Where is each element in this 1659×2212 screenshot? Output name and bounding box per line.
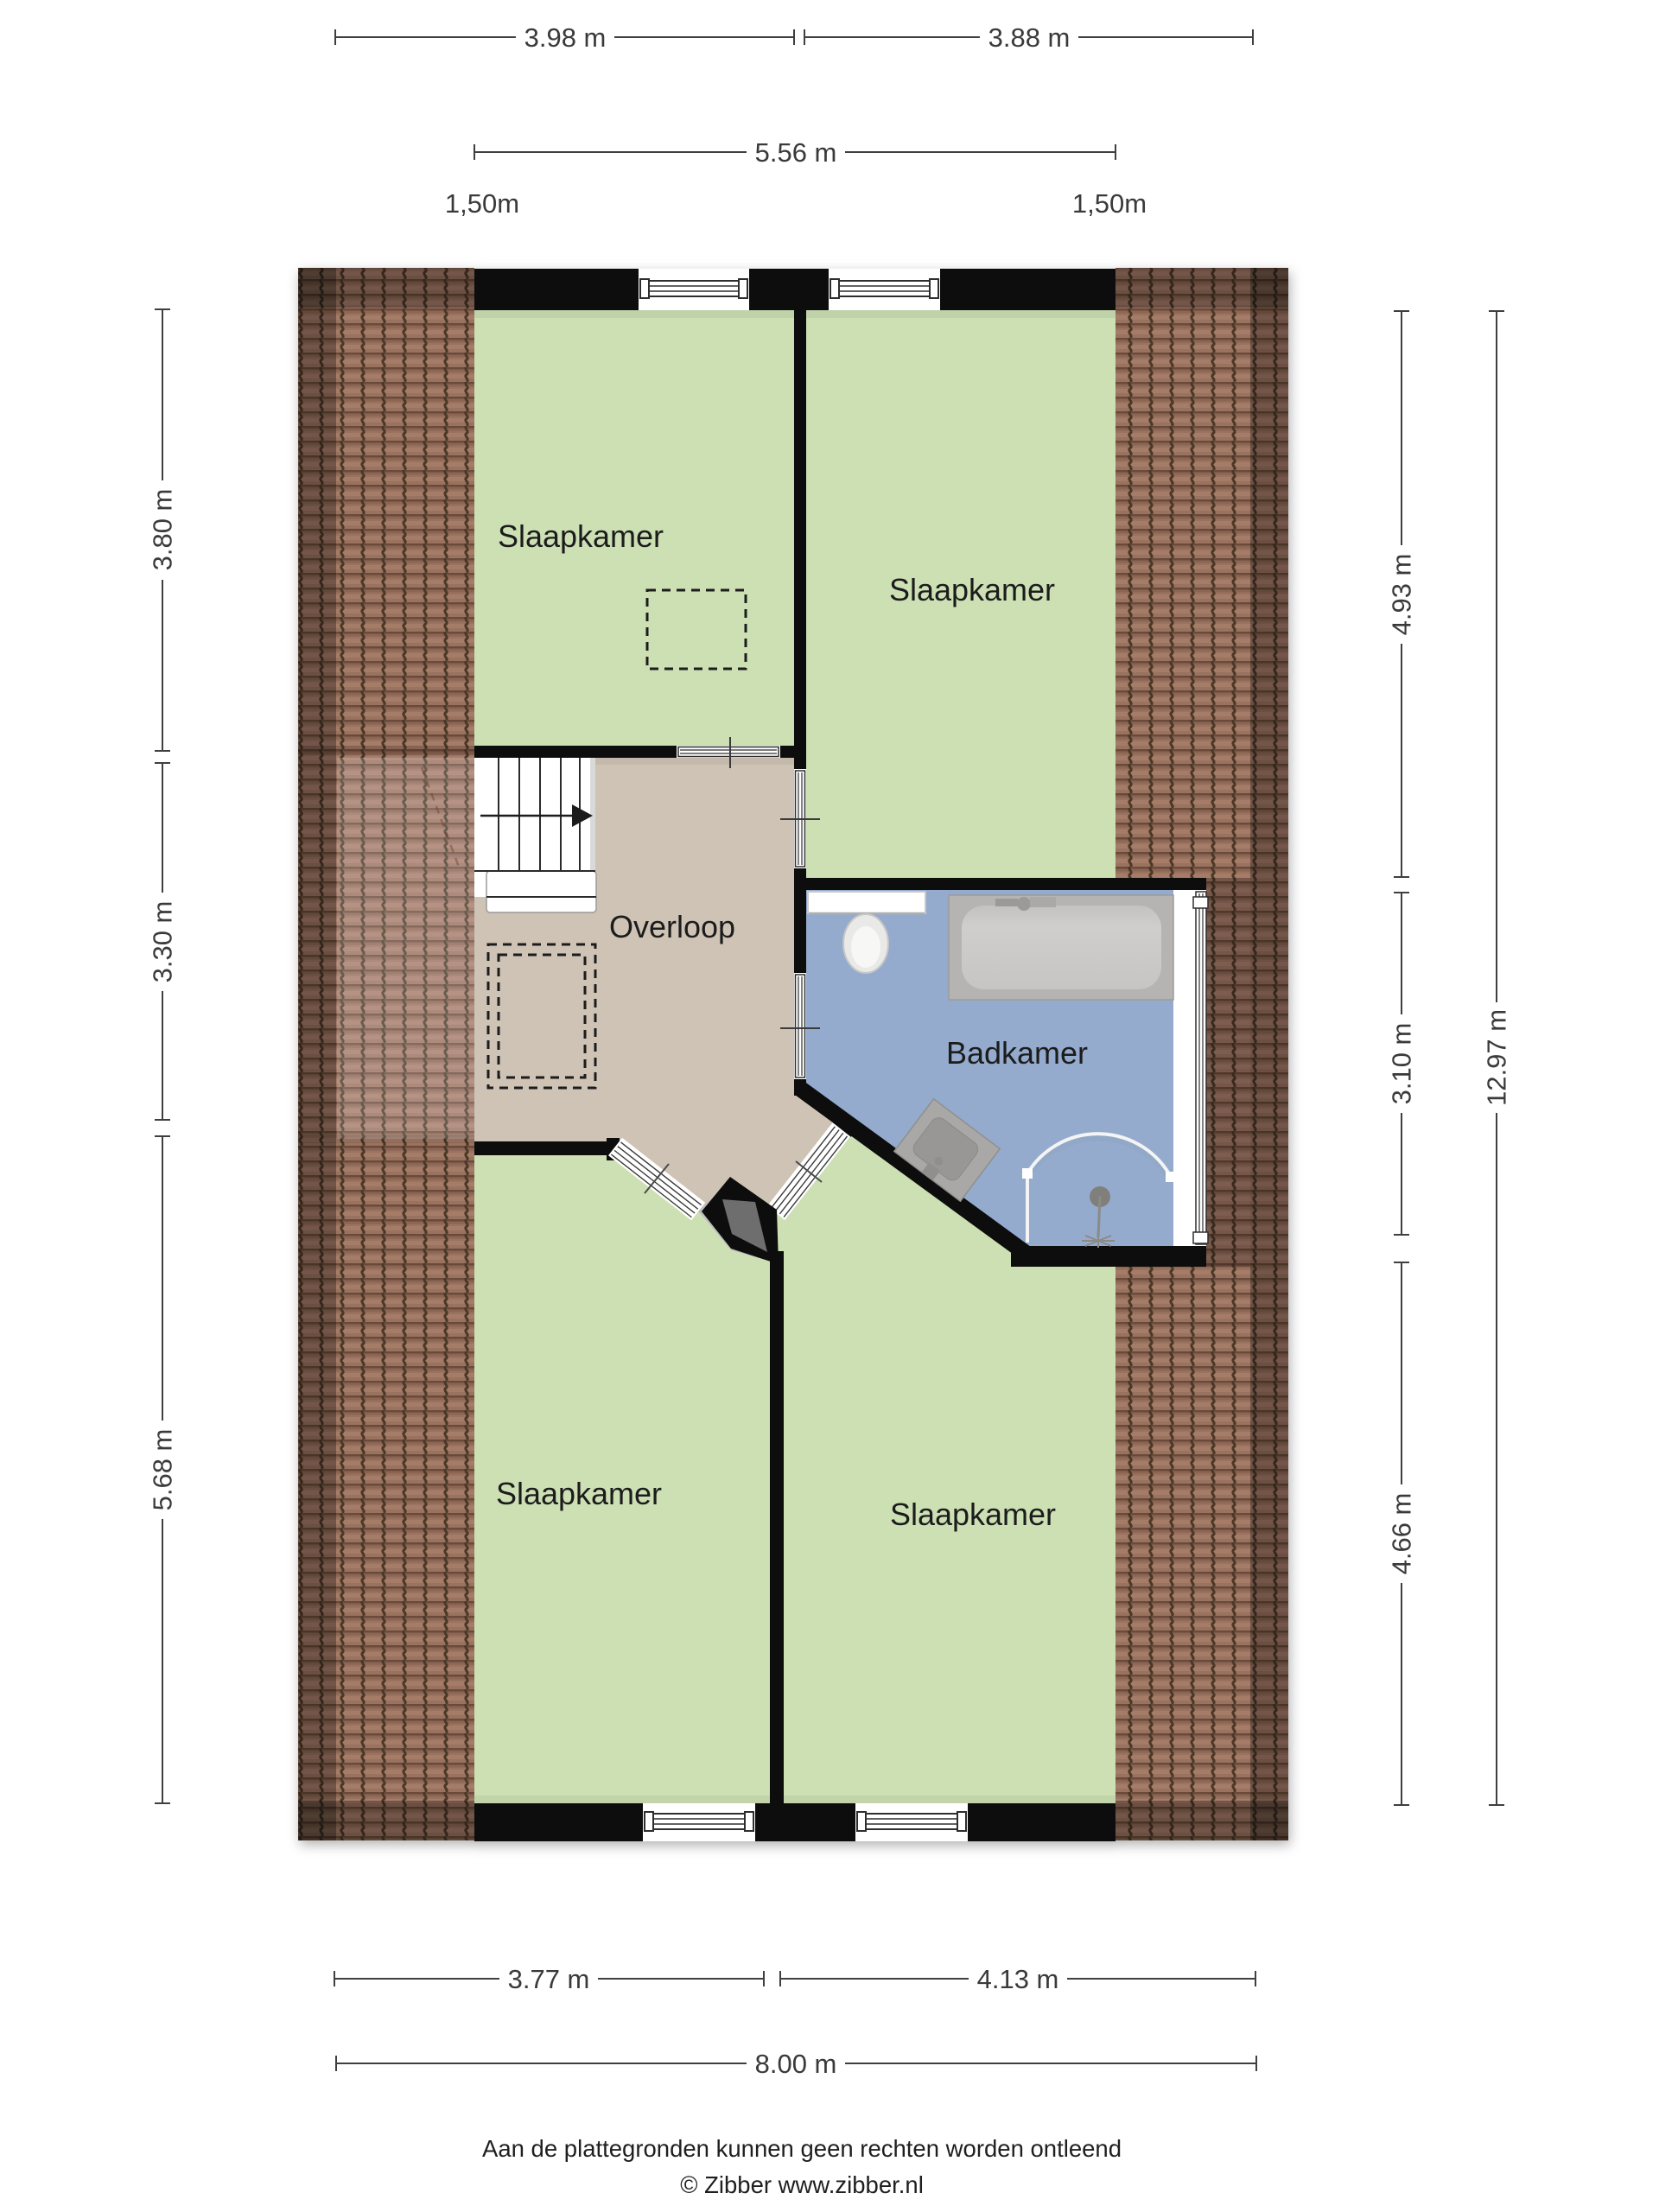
svg-text:1,50m: 1,50m [445, 188, 519, 219]
svg-text:1,50m: 1,50m [1072, 188, 1147, 219]
svg-text:Slaapkamer: Slaapkamer [496, 1476, 662, 1511]
svg-text:3.88 m: 3.88 m [988, 22, 1071, 53]
svg-text:Slaapkamer: Slaapkamer [889, 572, 1055, 607]
svg-text:3.98 m: 3.98 m [524, 22, 607, 53]
svg-text:Slaapkamer: Slaapkamer [890, 1497, 1056, 1532]
svg-text:3.77 m: 3.77 m [508, 1964, 590, 1994]
svg-text:3.80 m: 3.80 m [148, 489, 178, 571]
svg-text:8.00 m: 8.00 m [755, 2049, 837, 2079]
svg-text:5.56 m: 5.56 m [755, 137, 837, 168]
svg-text:3.10 m: 3.10 m [1387, 1023, 1417, 1105]
svg-text:4.66 m: 4.66 m [1387, 1493, 1417, 1575]
svg-text:© Zibber www.zibber.nl: © Zibber www.zibber.nl [680, 2171, 924, 2198]
svg-text:Overloop: Overloop [609, 909, 735, 944]
svg-text:Slaapkamer: Slaapkamer [498, 518, 664, 554]
svg-text:12.97 m: 12.97 m [1482, 1009, 1512, 1106]
svg-text:5.68 m: 5.68 m [148, 1429, 178, 1511]
svg-text:4.13 m: 4.13 m [977, 1964, 1059, 1994]
svg-text:Aan de plattegronden kunnen ge: Aan de plattegronden kunnen geen rechten… [482, 2135, 1122, 2162]
svg-text:Badkamer: Badkamer [946, 1035, 1088, 1071]
svg-text:4.93 m: 4.93 m [1387, 554, 1417, 636]
svg-text:3.30 m: 3.30 m [148, 901, 178, 983]
